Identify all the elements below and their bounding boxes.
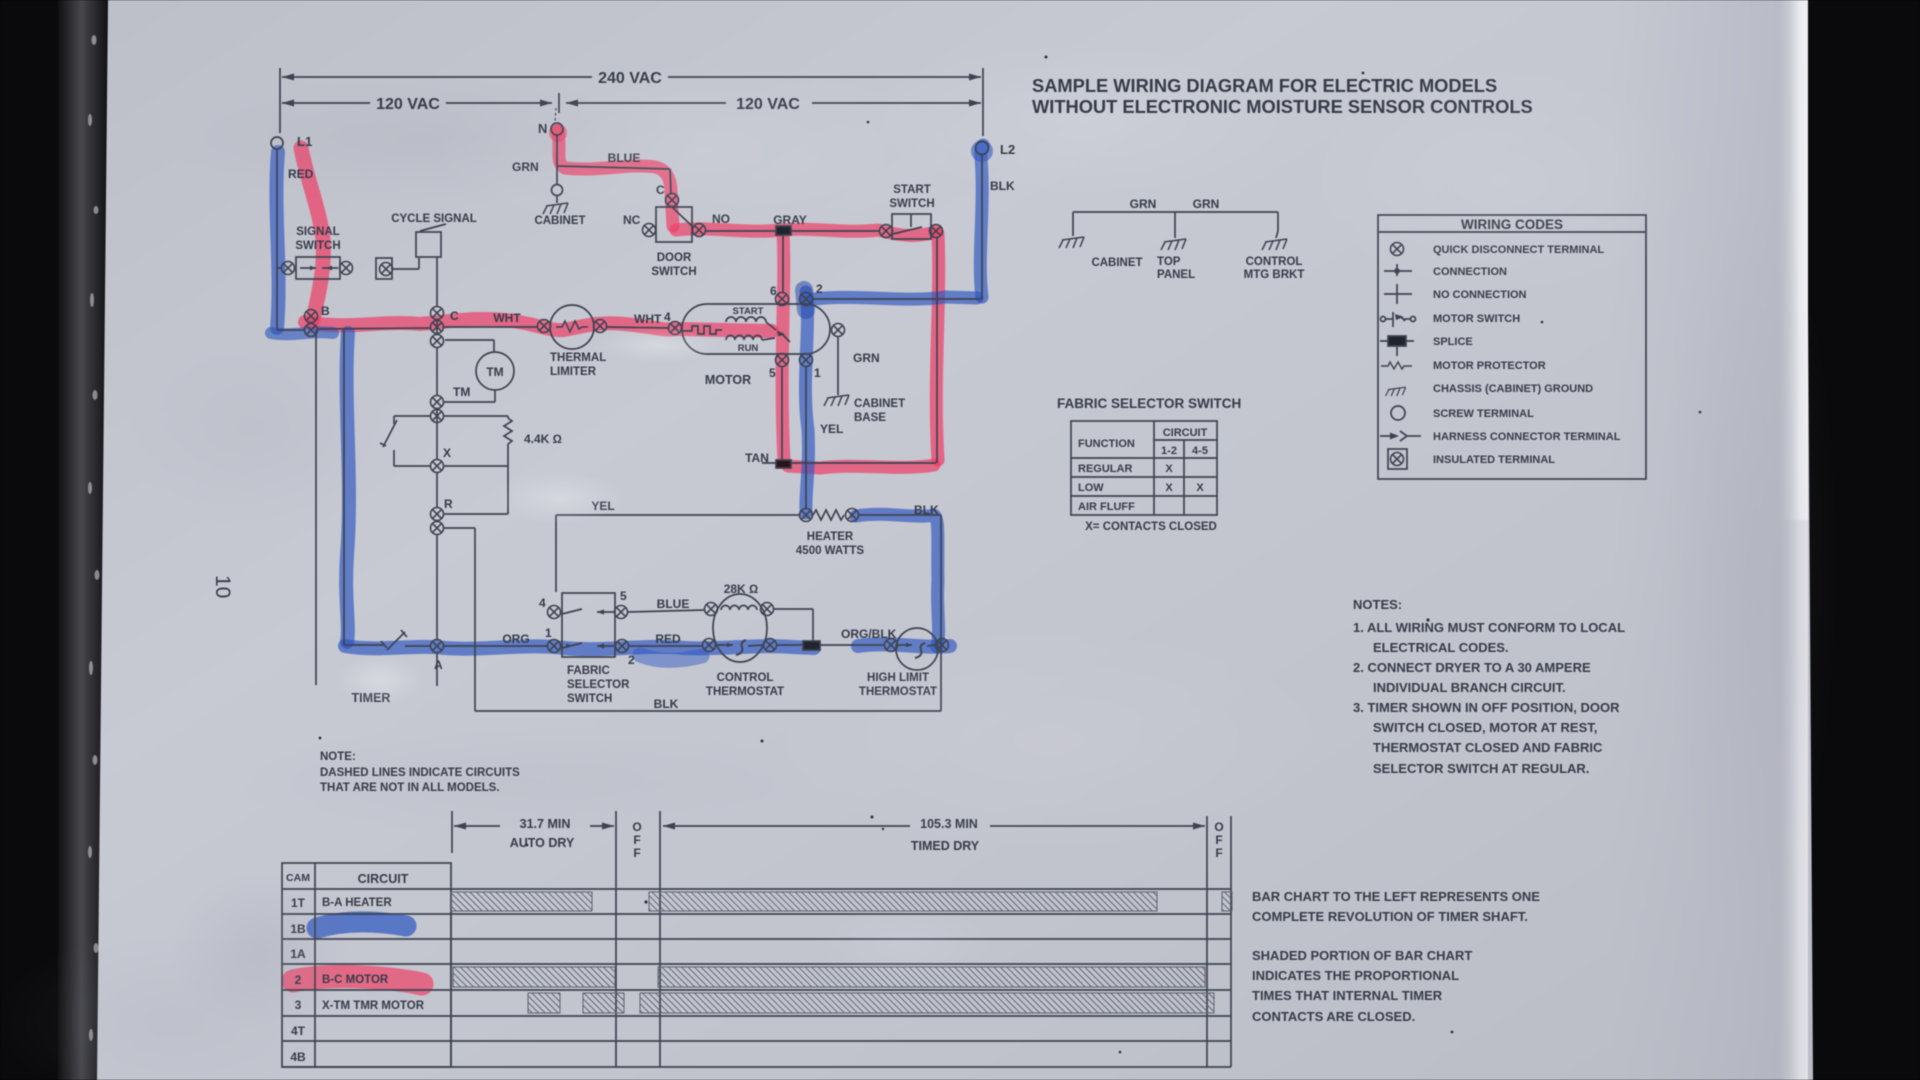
svg-text:RED: RED [655, 632, 681, 646]
svg-text:3. TIMER SHOWN IN OFF POSITION: 3. TIMER SHOWN IN OFF POSITION, DOOR [1353, 700, 1620, 715]
svg-text:FUNCTION: FUNCTION [1078, 438, 1135, 450]
svg-text:MOTOR: MOTOR [705, 373, 751, 387]
svg-text:5: 5 [620, 589, 627, 603]
svg-text:28K Ω: 28K Ω [724, 582, 759, 596]
svg-text:GRN: GRN [853, 351, 880, 365]
svg-text:DASHED LINES INDICATE CIRCUITS: DASHED LINES INDICATE CIRCUITS [320, 767, 520, 779]
svg-text:AUTO DRY: AUTO DRY [510, 836, 575, 850]
svg-text:YEL: YEL [820, 422, 843, 436]
svg-text:SELECTOR: SELECTOR [567, 679, 630, 691]
svg-text:X-TM TMR MOTOR: X-TM TMR MOTOR [322, 1000, 425, 1012]
svg-text:REGULAR: REGULAR [1078, 463, 1132, 475]
svg-text:ELECTRICAL CODES.: ELECTRICAL CODES. [1373, 640, 1509, 655]
svg-text:RED: RED [288, 167, 314, 181]
svg-text:R: R [444, 497, 453, 511]
svg-text:F: F [1215, 846, 1222, 860]
svg-text:CIRCUIT: CIRCUIT [358, 872, 409, 886]
svg-text:L1: L1 [297, 134, 312, 149]
svg-text:HARNESS CONNECTOR TERMINAL: HARNESS CONNECTOR TERMINAL [1433, 431, 1621, 443]
svg-text:X: X [443, 446, 451, 460]
svg-text:HEATER: HEATER [807, 531, 854, 543]
svg-text:4500 WATTS: 4500 WATTS [796, 545, 864, 557]
svg-text:SELECTOR SWITCH AT REGULAR.: SELECTOR SWITCH AT REGULAR. [1373, 761, 1589, 776]
svg-text:X: X [1165, 463, 1173, 475]
svg-text:CONTACTS ARE CLOSED.: CONTACTS ARE CLOSED. [1252, 1009, 1415, 1024]
svg-text:LOW: LOW [1078, 482, 1104, 494]
svg-text:DOOR: DOOR [657, 252, 692, 264]
svg-text:BLK: BLK [914, 503, 939, 517]
svg-text:PANEL: PANEL [1157, 269, 1195, 281]
svg-text:4.4K Ω: 4.4K Ω [524, 432, 562, 446]
svg-text:F: F [633, 846, 640, 860]
svg-text:THAT ARE NOT IN ALL MODELS.: THAT ARE NOT IN ALL MODELS. [320, 782, 500, 794]
svg-text:SPLICE: SPLICE [1433, 336, 1473, 348]
svg-text:CIRCUIT: CIRCUIT [1163, 427, 1208, 439]
svg-text:BASE: BASE [854, 412, 886, 424]
svg-text:120 VAC: 120 VAC [376, 96, 440, 113]
svg-text:SWITCH: SWITCH [295, 240, 340, 252]
svg-text:THERMAL: THERMAL [550, 352, 606, 364]
svg-text:TIMES THAT INTERNAL TIMER: TIMES THAT INTERNAL TIMER [1252, 988, 1443, 1003]
svg-text:ORG: ORG [502, 632, 529, 646]
svg-text:CONTROL: CONTROL [1246, 256, 1303, 268]
svg-text:4-5: 4-5 [1192, 445, 1208, 457]
svg-text:X: X [1196, 482, 1204, 494]
svg-text:CHASSIS (CABINET) GROUND: CHASSIS (CABINET) GROUND [1433, 383, 1593, 395]
svg-text:TM: TM [453, 385, 470, 399]
svg-text:INDICATES THE PROPORTIONAL: INDICATES THE PROPORTIONAL [1252, 968, 1459, 983]
svg-text:MOTOR SWITCH: MOTOR SWITCH [1433, 313, 1520, 325]
svg-text:FABRIC SELECTOR SWITCH: FABRIC SELECTOR SWITCH [1057, 396, 1241, 411]
svg-text:TM: TM [486, 365, 503, 379]
svg-text:SIGNAL: SIGNAL [296, 226, 339, 238]
svg-text:RUN: RUN [738, 343, 759, 354]
svg-text:SHADED PORTION OF BAR CHART: SHADED PORTION OF BAR CHART [1252, 948, 1472, 963]
svg-text:C: C [450, 309, 459, 323]
svg-text:NOTE:: NOTE: [320, 751, 356, 763]
svg-text:O: O [632, 820, 641, 834]
svg-text:SWITCH: SWITCH [651, 266, 696, 278]
svg-text:6: 6 [770, 284, 777, 298]
svg-text:X: X [1165, 482, 1173, 494]
svg-text:FABRIC: FABRIC [567, 665, 610, 677]
svg-text:B: B [321, 304, 330, 318]
svg-text:WHT: WHT [493, 311, 521, 325]
svg-text:SWITCH: SWITCH [567, 693, 612, 705]
svg-text:BAR CHART TO THE LEFT REPRESEN: BAR CHART TO THE LEFT REPRESENTS ONE [1252, 889, 1540, 904]
svg-text:START: START [733, 306, 764, 317]
svg-text:1. ALL WIRING MUST CONFORM TO: 1. ALL WIRING MUST CONFORM TO LOCAL [1353, 620, 1625, 635]
svg-text:BLK: BLK [654, 697, 679, 711]
svg-text:2: 2 [628, 653, 635, 667]
svg-text:NOTES:: NOTES: [1353, 597, 1402, 612]
svg-text:INDIVIDUAL BRANCH CIRCUIT.: INDIVIDUAL BRANCH CIRCUIT. [1373, 680, 1566, 695]
svg-text:CYCLE SIGNAL: CYCLE SIGNAL [391, 213, 477, 225]
svg-text:5: 5 [769, 366, 776, 380]
svg-text:10: 10 [211, 575, 234, 598]
svg-text:BLUE: BLUE [657, 597, 690, 611]
svg-text:4: 4 [539, 596, 546, 610]
svg-text:1: 1 [814, 366, 821, 380]
svg-text:CONTROL: CONTROL [717, 672, 774, 684]
svg-text:SWITCH CLOSED, MOTOR AT REST,: SWITCH CLOSED, MOTOR AT REST, [1373, 720, 1597, 735]
svg-text:A: A [434, 658, 443, 672]
svg-text:INSULATED TERMINAL: INSULATED TERMINAL [1433, 454, 1555, 466]
svg-text:1-2: 1-2 [1161, 445, 1177, 457]
svg-text:GRN: GRN [1193, 197, 1220, 211]
svg-text:MTG BRKT: MTG BRKT [1244, 269, 1305, 281]
svg-text:LIMITER: LIMITER [550, 366, 597, 378]
svg-text:MOTOR PROTECTOR: MOTOR PROTECTOR [1433, 360, 1546, 372]
svg-text:THERMOSTAT CLOSED AND FABRIC: THERMOSTAT CLOSED AND FABRIC [1373, 740, 1603, 755]
svg-text:4B: 4B [290, 1050, 306, 1064]
svg-text:F: F [633, 833, 640, 847]
svg-text:X= CONTACTS CLOSED: X= CONTACTS CLOSED [1085, 521, 1217, 533]
svg-text:4T: 4T [291, 1024, 306, 1038]
svg-text:COMPLETE REVOLUTION OF TIMER S: COMPLETE REVOLUTION OF TIMER SHAFT. [1252, 909, 1528, 924]
svg-text:CABINET: CABINET [1091, 257, 1142, 269]
svg-text:1: 1 [545, 626, 552, 640]
svg-text:WHT: WHT [634, 312, 662, 326]
svg-text:SCREW TERMINAL: SCREW TERMINAL [1433, 408, 1534, 420]
svg-text:4: 4 [664, 310, 671, 324]
svg-text:TOP: TOP [1157, 256, 1181, 268]
svg-text:2. CONNECT DRYER TO A 30 AMPER: 2. CONNECT DRYER TO A 30 AMPERE [1353, 660, 1591, 675]
svg-text:BLK: BLK [990, 179, 1015, 193]
svg-text:CABINET: CABINET [854, 398, 905, 410]
svg-text:L2: L2 [1000, 142, 1015, 157]
svg-text:AIR FLUFF: AIR FLUFF [1078, 501, 1135, 513]
svg-text:31.7 MIN: 31.7 MIN [520, 817, 571, 831]
svg-text:2: 2 [816, 282, 823, 296]
svg-text:GRN: GRN [1130, 197, 1157, 211]
